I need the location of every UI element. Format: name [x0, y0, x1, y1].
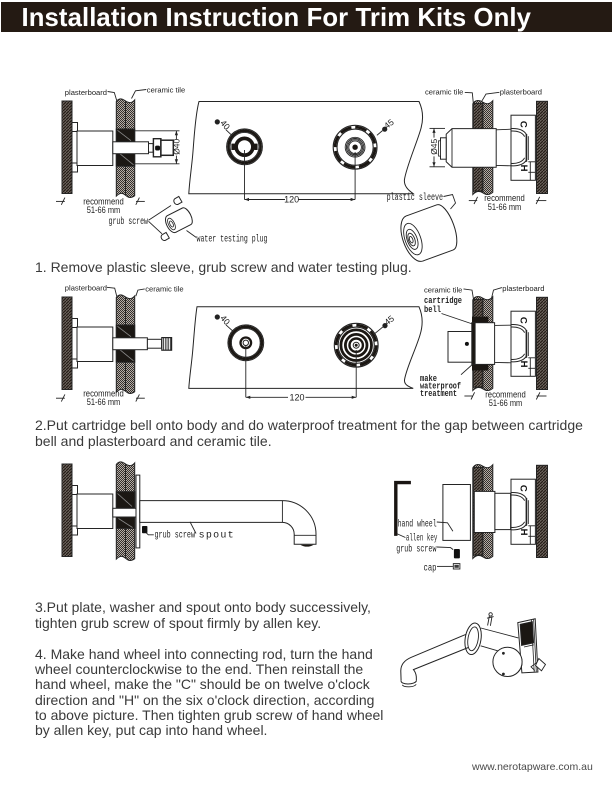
svg-text:51-66 mm: 51-66 mm [87, 397, 121, 407]
svg-text:bell: bell [424, 305, 441, 315]
svg-text:grub screw: grub screw [396, 544, 436, 556]
svg-text:51-66 mm: 51-66 mm [87, 205, 121, 215]
svg-text:ceramic tile: ceramic tile [145, 285, 183, 294]
svg-text:120: 120 [289, 392, 304, 402]
svg-text:allen key: allen key [406, 532, 438, 544]
svg-text:spout: spout [199, 531, 234, 542]
svg-text:plasterboard: plasterboard [65, 284, 107, 293]
svg-text:51-66 mm: 51-66 mm [489, 398, 523, 408]
svg-text:water testing plug: water testing plug [197, 233, 268, 245]
svg-text:ceramic tile: ceramic tile [424, 285, 462, 294]
svg-text:grub screw: grub screw [109, 216, 149, 228]
svg-text:treatment: treatment [420, 389, 457, 399]
svg-text:plasterboard: plasterboard [65, 88, 107, 97]
svg-text:hand wheel: hand wheel [398, 519, 437, 531]
svg-text:cap: cap [424, 564, 437, 575]
svg-text:plastic sleeve: plastic sleeve [387, 192, 444, 204]
svg-text:Ø45: Ø45 [429, 138, 439, 154]
svg-text:ceramic tile: ceramic tile [425, 87, 463, 96]
svg-text:plasterboard: plasterboard [502, 284, 544, 293]
svg-text:grub screw: grub screw [155, 530, 196, 542]
svg-text:51-66 mm: 51-66 mm [488, 202, 522, 212]
svg-text:Ø40: Ø40 [172, 138, 182, 154]
svg-text:120: 120 [284, 194, 299, 204]
svg-text:plasterboard: plasterboard [500, 87, 542, 96]
svg-text:ceramic tile: ceramic tile [147, 86, 185, 95]
